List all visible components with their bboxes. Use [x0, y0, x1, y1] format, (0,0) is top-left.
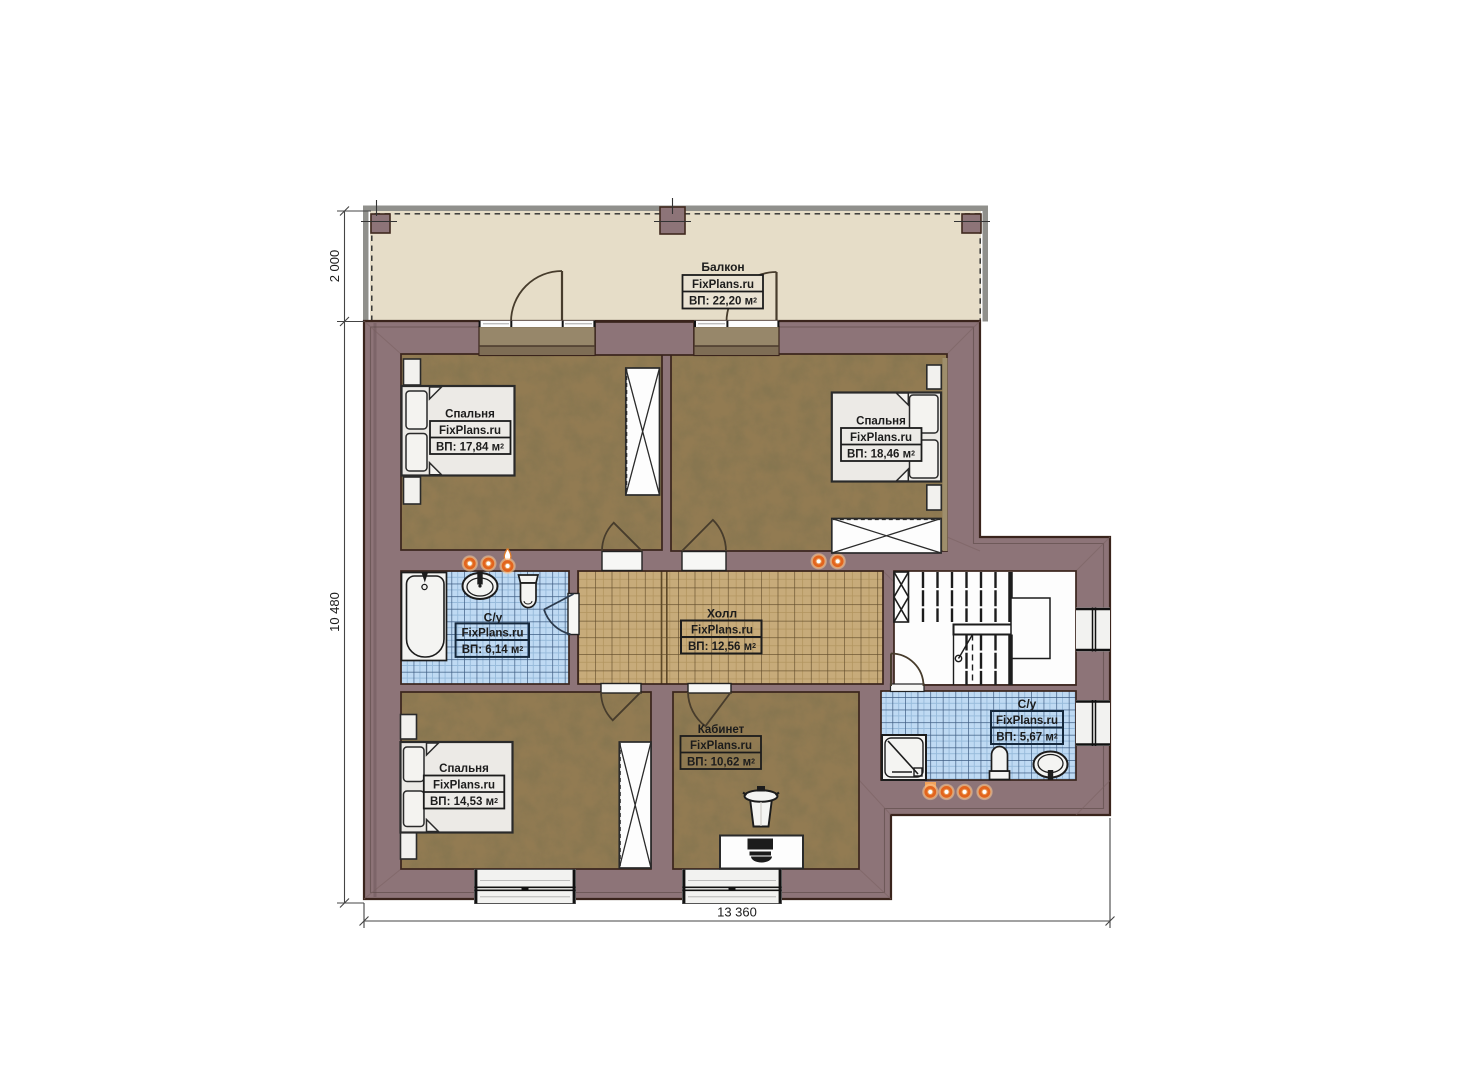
svg-text:Спальня: Спальня — [856, 416, 906, 428]
svg-text:С/у: С/у — [1018, 697, 1037, 711]
svg-text:ВП: 17,84 м2: ВП: 17,84 м2 — [436, 441, 504, 453]
svg-text:Спальня: Спальня — [439, 763, 489, 775]
svg-text:2 000: 2 000 — [327, 250, 342, 283]
svg-text:ВП: 14,53 м2: ВП: 14,53 м2 — [430, 796, 498, 808]
svg-text:ВП: 18,46 м2: ВП: 18,46 м2 — [847, 448, 915, 460]
svg-text:FixPlans.ru: FixPlans.ru — [462, 628, 524, 640]
svg-text:ВП: 12,56 м2: ВП: 12,56 м2 — [688, 641, 756, 653]
svg-text:10 480: 10 480 — [327, 592, 342, 632]
svg-text:Холл: Холл — [707, 607, 737, 621]
svg-text:FixPlans.ru: FixPlans.ru — [692, 279, 754, 291]
svg-text:ВП: 10,62 м2: ВП: 10,62 м2 — [687, 756, 755, 768]
svg-text:FixPlans.ru: FixPlans.ru — [433, 779, 495, 791]
svg-text:Кабинет: Кабинет — [698, 724, 745, 736]
svg-text:Балкон: Балкон — [701, 260, 744, 274]
svg-text:13 360: 13 360 — [717, 905, 757, 920]
svg-text:FixPlans.ru: FixPlans.ru — [439, 425, 501, 437]
svg-text:ВП: 6,14 м2: ВП: 6,14 м2 — [462, 644, 524, 656]
svg-text:FixPlans.ru: FixPlans.ru — [690, 740, 752, 752]
svg-text:FixPlans.ru: FixPlans.ru — [691, 624, 753, 636]
svg-text:ВП: 5,67 м2: ВП: 5,67 м2 — [996, 732, 1058, 744]
svg-text:FixPlans.ru: FixPlans.ru — [850, 432, 912, 444]
svg-text:ВП: 22,20 м2: ВП: 22,20 м2 — [689, 296, 757, 308]
svg-text:Спальня: Спальня — [445, 409, 495, 421]
svg-text:FixPlans.ru: FixPlans.ru — [996, 715, 1058, 727]
